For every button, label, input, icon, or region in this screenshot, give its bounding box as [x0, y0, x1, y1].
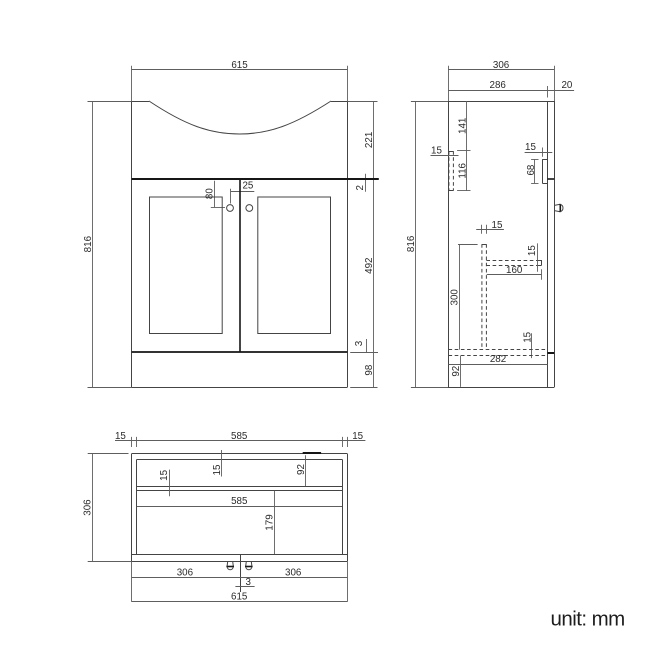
svg-text:615: 615: [231, 592, 248, 603]
svg-text:286: 286: [490, 80, 507, 91]
svg-text:300: 300: [449, 289, 460, 306]
svg-text:15: 15: [527, 245, 538, 256]
svg-text:92: 92: [451, 366, 462, 377]
svg-text:3: 3: [245, 577, 251, 588]
svg-text:80: 80: [204, 188, 215, 199]
svg-text:179: 179: [264, 514, 275, 530]
svg-text:15: 15: [212, 464, 223, 475]
svg-text:98: 98: [364, 364, 375, 375]
svg-text:221: 221: [364, 132, 375, 148]
svg-text:585: 585: [231, 496, 248, 507]
svg-text:116: 116: [457, 162, 468, 178]
svg-text:15: 15: [492, 220, 503, 231]
svg-text:615: 615: [231, 60, 248, 71]
svg-text:282: 282: [490, 354, 506, 365]
svg-text:15: 15: [431, 146, 442, 157]
svg-text:68: 68: [526, 164, 537, 175]
svg-text:816: 816: [83, 235, 94, 252]
svg-text:15: 15: [525, 142, 536, 153]
svg-text:15: 15: [115, 431, 126, 442]
svg-text:20: 20: [561, 80, 572, 91]
svg-text:15: 15: [352, 431, 363, 442]
svg-text:306: 306: [177, 567, 194, 578]
svg-text:816: 816: [406, 235, 417, 252]
svg-text:2: 2: [355, 185, 366, 190]
svg-text:15: 15: [522, 331, 533, 342]
svg-text:15: 15: [159, 469, 170, 480]
svg-text:306: 306: [83, 499, 94, 516]
svg-text:492: 492: [364, 258, 375, 274]
svg-text:25: 25: [242, 181, 253, 192]
svg-text:3: 3: [354, 340, 365, 346]
svg-text:585: 585: [231, 431, 248, 442]
svg-text:unit: mm: unit: mm: [551, 608, 625, 631]
svg-text:92: 92: [296, 464, 307, 475]
svg-text:306: 306: [285, 567, 302, 578]
svg-text:306: 306: [493, 60, 510, 71]
svg-text:141: 141: [457, 118, 468, 134]
svg-text:160: 160: [506, 265, 523, 276]
